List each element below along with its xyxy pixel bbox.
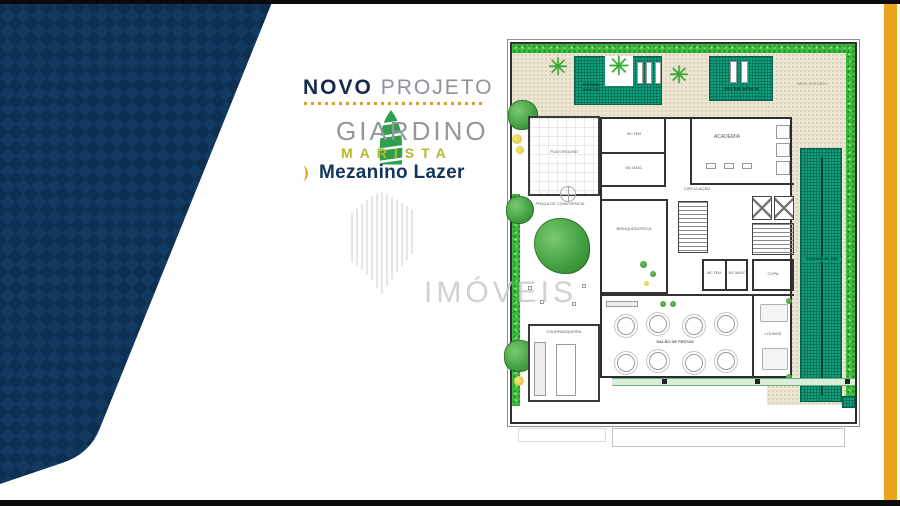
wc-block: WC FEM WC MASC: [602, 119, 666, 187]
floor-title: Mezanino Lazer: [319, 162, 465, 184]
gym-equipment: [776, 143, 790, 157]
academia-room: ACADEMIA: [690, 119, 794, 185]
terrace-outline: [518, 428, 606, 442]
kids-pool-label: PISCINA INFANTIL: [714, 87, 770, 92]
palm-tree-icon: ✳: [548, 56, 568, 80]
hedge-top: [512, 44, 855, 53]
party-table: [717, 352, 735, 370]
praca-label: PRAÇA DE CONVIVÊNCIA: [525, 202, 595, 207]
kids-pool: PISCINA INFANTIL: [709, 56, 773, 101]
kicker-bold: NOVO: [303, 76, 373, 99]
kicker-light: PROJETO: [381, 76, 494, 99]
praca-chair: [582, 284, 586, 288]
wc-masc-label: WC MASC: [614, 166, 654, 170]
gym-bench: [724, 163, 734, 169]
party-table: [685, 317, 703, 335]
adult-pool-label: PISCINA ADULTO: [576, 83, 606, 93]
brand-name: GIARDINO: [336, 116, 489, 147]
bottom-border-bar: [0, 500, 900, 506]
gym-equipment: [776, 161, 790, 175]
churrasqueira-counter: [534, 342, 546, 396]
party-table: [685, 354, 703, 372]
gym-equipment: [776, 125, 790, 139]
wc-fem-label: WC FEM: [614, 132, 654, 136]
palm-tree-icon: ✳: [608, 53, 630, 79]
elevator: [752, 196, 772, 220]
pool-lounger: [646, 62, 652, 84]
wc-pair: WC FEM WC MASC: [702, 259, 748, 291]
playground-room: PLAYGROUND: [528, 116, 600, 196]
salao-label: SALÃO DE FESTAS: [630, 340, 720, 345]
party-table: [649, 315, 667, 333]
bush-icon: [516, 146, 524, 154]
floor-title-row: Mezanino Lazer: [301, 162, 465, 184]
gym-bench: [706, 163, 716, 169]
playground-label: PLAYGROUND: [538, 150, 590, 155]
dotted-divider: [304, 102, 482, 105]
party-table: [617, 317, 635, 335]
brinquedoteca-label: BRINQUEDOTECA: [606, 227, 662, 232]
toy-icon: [644, 281, 649, 286]
hedge-right: [846, 44, 855, 405]
column: [845, 379, 850, 384]
pool-lounger: [637, 62, 643, 84]
party-table: [649, 352, 667, 370]
column: [755, 379, 760, 384]
brinquedoteca-room: BRINQUEDOTECA: [602, 199, 668, 294]
stairs: [678, 201, 708, 253]
plant-icon: [660, 301, 666, 307]
stairs: [752, 223, 794, 255]
sofa: [760, 304, 788, 322]
plant-icon: [786, 298, 792, 304]
circulacao-label: CIRCULAÇÃO: [652, 187, 742, 192]
sofa: [762, 348, 788, 370]
bar-counter: [606, 301, 638, 307]
gym-bench: [742, 163, 752, 169]
copa-room: COPA: [752, 259, 794, 291]
pool-steps: [842, 396, 855, 408]
party-table: [717, 315, 735, 333]
pool-lounger: [730, 61, 737, 83]
lap-pool-label: PISCINA DE 25M: [803, 257, 841, 262]
terrace-strip: [612, 378, 855, 386]
building-watermark-icon: [350, 192, 414, 296]
building: WC FEM WC MASC ACADEMIA CIRCULAÇÃO BRINQ…: [600, 117, 792, 378]
large-tree-icon: [534, 218, 590, 274]
wc-fem-label: WC FEM: [704, 271, 724, 275]
academia-label: ACADEMIA: [702, 135, 752, 141]
palm-tree-icon: ✳: [669, 64, 689, 88]
churrasqueira-table: [556, 344, 576, 396]
party-table: [617, 354, 635, 372]
elevator: [774, 196, 794, 220]
terrace-outline: [612, 428, 845, 447]
imoveis-watermark: IMÓVEIS: [424, 276, 577, 310]
salao-room: SALÃO DE FESTAS LOUNGE: [602, 294, 794, 380]
wall: [752, 296, 754, 382]
lap-pool: PISCINA DE 25M: [800, 148, 842, 402]
churrasqueira-room: CHURRASQUEIRA: [528, 324, 600, 402]
floor-plan: PISCINA ADULTO PISCINA INFANTIL DECK ELE…: [510, 42, 857, 424]
plant-icon: [640, 261, 647, 268]
brand-subtitle: MARISTA: [341, 145, 453, 161]
copa-label: COPA: [756, 272, 790, 277]
slide: NOVO PROJETO GIARDINO MARISTA Mezanino L…: [0, 0, 900, 506]
gold-accent-bar: [884, 4, 897, 500]
lap-pool-lane-line: [821, 157, 823, 395]
crescent-icon: [301, 165, 312, 182]
bush-icon: [514, 376, 524, 386]
plant-icon: [650, 271, 656, 277]
wc-masc-label: WC MASC: [727, 271, 747, 275]
plant-icon: [670, 301, 676, 307]
pool-lounger: [741, 61, 748, 83]
churrasqueira-label: CHURRASQUEIRA: [532, 330, 596, 335]
pool-lounger: [655, 62, 661, 84]
column: [662, 379, 667, 384]
deck-label: DECK ELEVADO: [780, 82, 844, 87]
top-border-bar: [0, 0, 900, 4]
wall: [602, 152, 666, 154]
bush-icon: [512, 134, 522, 144]
kicker: NOVO PROJETO: [303, 76, 493, 100]
lounge-label: LOUNGE: [754, 332, 792, 337]
